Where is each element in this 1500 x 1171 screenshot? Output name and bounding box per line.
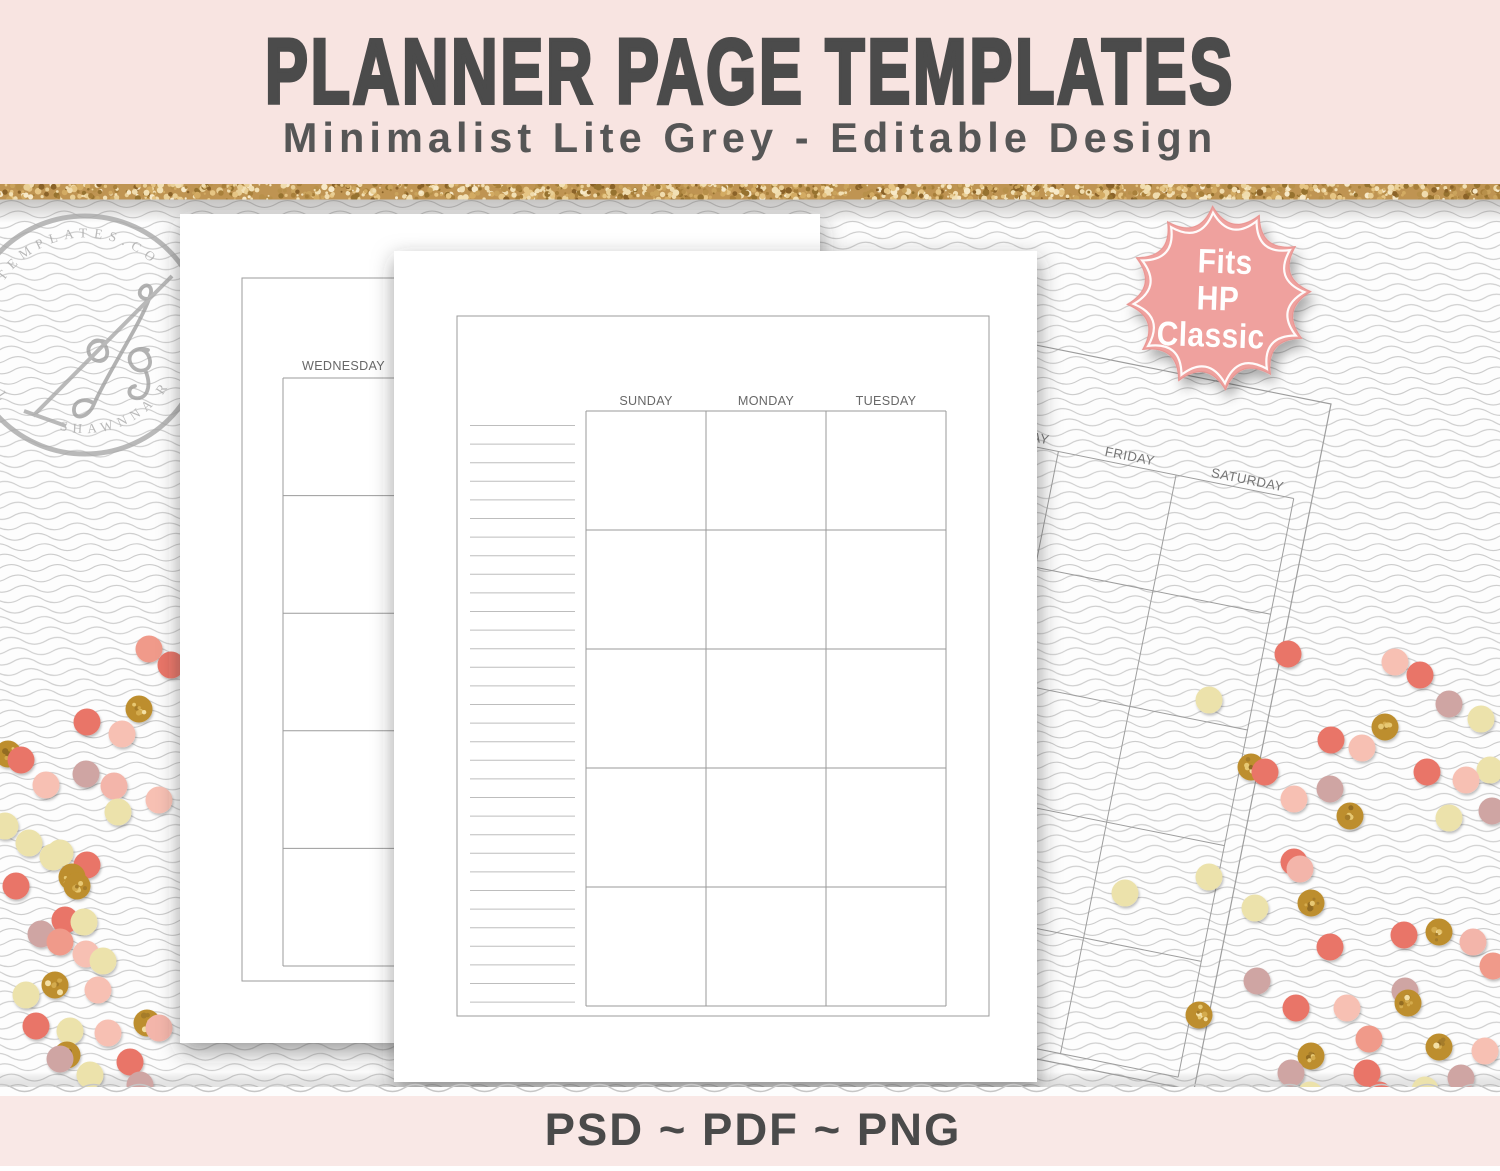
svg-text:Classic: Classic bbox=[1156, 314, 1265, 356]
svg-text:TUESDAY: TUESDAY bbox=[856, 394, 917, 408]
svg-text:MONDAY: MONDAY bbox=[738, 394, 794, 408]
svg-text:PLANNER PAGE TEMPLATES: PLANNER PAGE TEMPLATES bbox=[265, 20, 1235, 123]
svg-text:Fits: Fits bbox=[1197, 241, 1253, 281]
svg-text:SUNDAY: SUNDAY bbox=[619, 394, 673, 408]
svg-text:PSD ~ PDF ~ PNG: PSD ~ PDF ~ PNG bbox=[545, 1104, 962, 1155]
svg-text:HP: HP bbox=[1196, 278, 1240, 318]
svg-text:WEDNESDAY: WEDNESDAY bbox=[302, 359, 385, 373]
svg-text:Minimalist Lite Grey - Editabl: Minimalist Lite Grey - Editable Design bbox=[283, 114, 1217, 161]
